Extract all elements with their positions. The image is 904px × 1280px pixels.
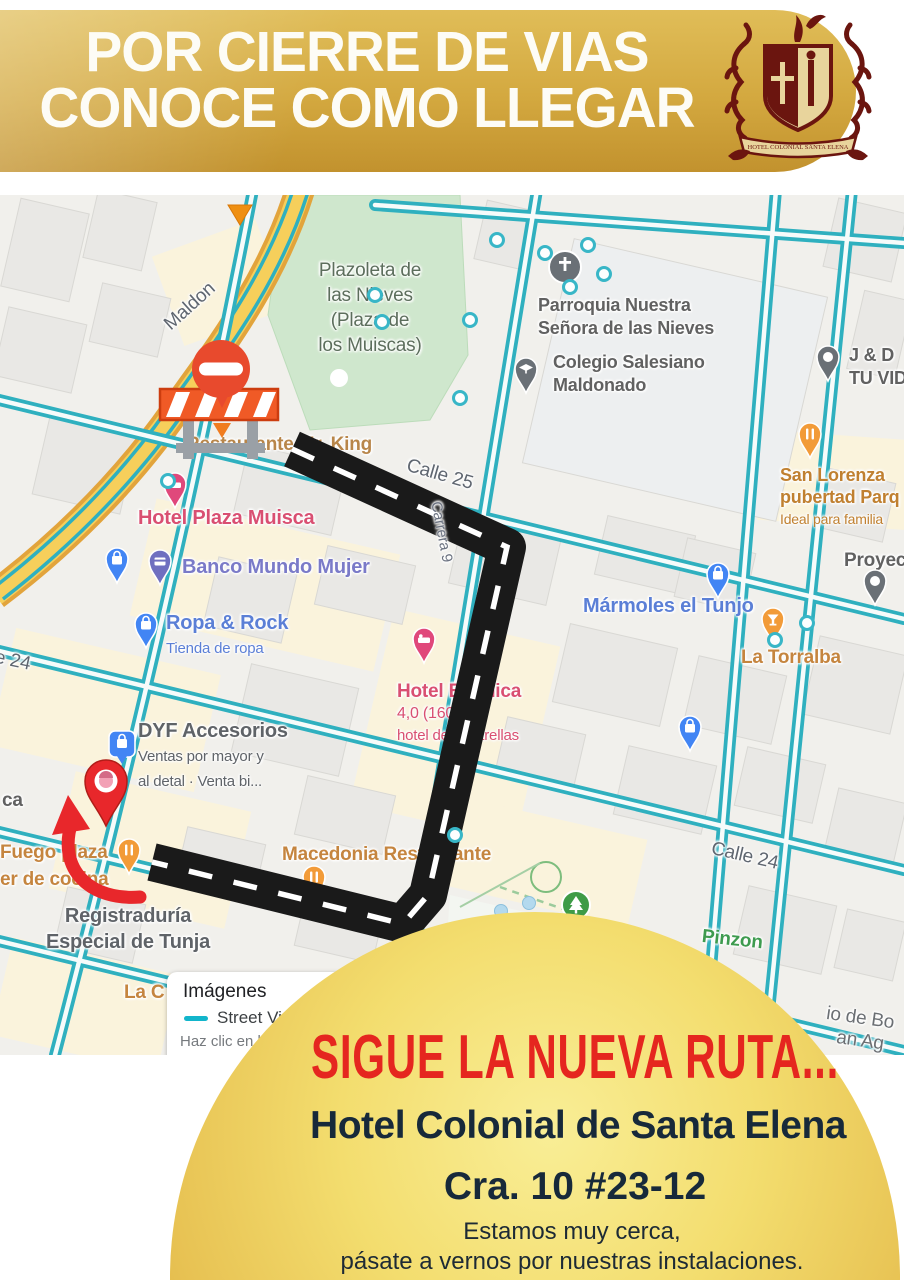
crest-flourish-left	[727, 25, 750, 138]
direction-arrow	[52, 795, 140, 897]
legend-title: Imágenes	[183, 981, 266, 1003]
crest-ribbon-text: HOTEL COLONIAL SANTA ELENA	[748, 144, 849, 151]
street-view-line-icon	[184, 1016, 208, 1021]
new-route-road	[152, 449, 507, 924]
crest-animal-right	[846, 149, 868, 160]
road-closed-barrier	[160, 340, 278, 459]
crest-flourish-right	[847, 25, 870, 138]
footer-subtext-1: Estamos muy cerca,	[463, 1218, 680, 1246]
crest-plume	[794, 15, 803, 42]
crest-figure	[808, 60, 814, 106]
crest-animal-left	[728, 149, 750, 160]
crest-cross-bar	[771, 76, 794, 81]
footer-hotel-name: Hotel Colonial de Santa Elena	[310, 1104, 846, 1148]
header-line-1: POR CIERRE DE VIAS	[32, 24, 701, 80]
hotel-crest-logo: HOTEL COLONIAL SANTA ELENA	[700, 10, 895, 168]
destination-pin	[85, 760, 127, 826]
header-line-2: CONOCE COMO LLEGAR	[32, 80, 701, 136]
crest-bird	[806, 15, 826, 29]
crest-figure-head	[807, 51, 816, 60]
legend-hint: Haz clic en l	[180, 1033, 261, 1050]
footer-headline: SIGUE LA NUEVA RUTA...	[311, 1022, 839, 1093]
header-title: POR CIERRE DE VIAS CONOCE COMO LLEGAR	[32, 24, 701, 136]
flyer-poster: POR CIERRE DE VIAS CONOCE COMO LLEGAR HO…	[0, 0, 904, 1280]
footer-address: Cra. 10 #23-12	[444, 1165, 706, 1209]
footer-subtext-2: pásate a vernos por nuestras instalacion…	[341, 1248, 804, 1276]
crest-cross-icon	[780, 62, 785, 104]
